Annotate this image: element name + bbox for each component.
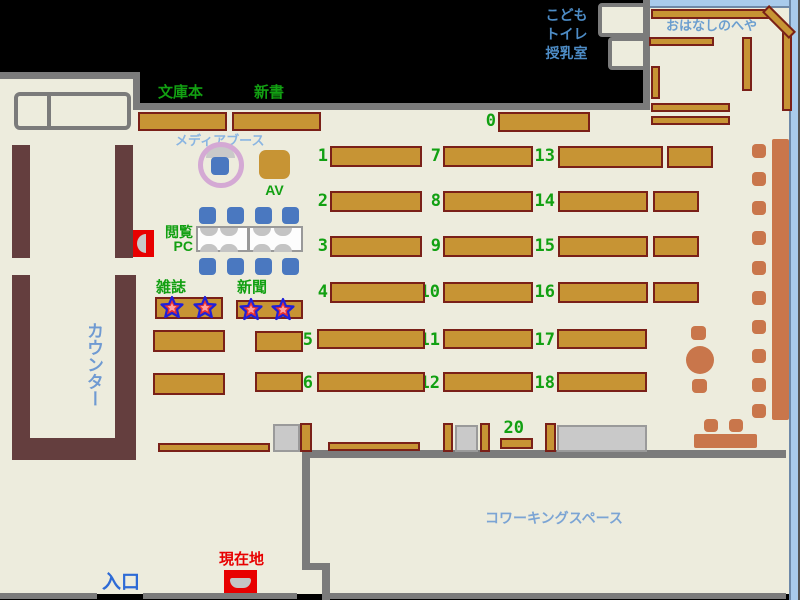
bookshelf (500, 438, 533, 449)
kids-toilet-label: こども トイレ 授乳室 (540, 6, 593, 63)
media-booth-ring-icon (198, 142, 244, 188)
wall (302, 450, 786, 458)
bookshelf (158, 443, 270, 452)
shelf-number-18: 18 (531, 375, 555, 392)
kids-toilet-label-line2: トイレ (540, 25, 593, 44)
bench-icon (694, 434, 757, 448)
pc-table-arc-icon (253, 244, 271, 252)
room-divider (47, 96, 51, 126)
bookshelf (330, 236, 422, 257)
bookshelf (328, 442, 420, 451)
entrance-label: 入口 (102, 573, 140, 592)
stool-icon (752, 320, 766, 334)
round-table-icon (686, 346, 714, 374)
bookshelf (317, 372, 425, 392)
current-location-marker-icon (224, 570, 257, 594)
kids-toilet-label-line3: 授乳室 (540, 44, 593, 63)
bookshelf (443, 191, 533, 212)
counter-right-wing (115, 275, 136, 460)
pc-chair-icon (282, 207, 299, 224)
window-bench (772, 139, 789, 420)
bookshelf (255, 331, 303, 352)
bookshelf (742, 37, 752, 91)
bookshelf (653, 191, 699, 212)
bookshelf (651, 66, 660, 99)
counter-bottom (12, 438, 136, 460)
magazines-label: 雑誌 (156, 280, 186, 295)
pc-chair-icon (282, 258, 299, 275)
bookshelf (317, 329, 425, 349)
outside-area-top-left (0, 0, 136, 72)
pc-table-arc-icon (274, 244, 292, 252)
stool-icon (752, 144, 766, 158)
bookshelf (653, 282, 699, 303)
shelf-number-8: 8 (423, 193, 441, 210)
bookshelf (330, 282, 425, 303)
bookshelf (443, 423, 453, 452)
bookshelf (558, 236, 648, 257)
star-icon (271, 297, 295, 321)
shelf-number-1: 1 (310, 148, 328, 165)
pc-table-arc-icon (220, 244, 238, 252)
wall (322, 593, 786, 599)
library-floor-map: こども トイレ 授乳室 文庫本 新書 雑誌 新聞 閲覧 PC AV メディアブー… (0, 0, 800, 600)
newspapers-label: 新聞 (237, 280, 267, 295)
bookshelf (651, 116, 730, 125)
bookshelf (255, 372, 303, 392)
bookshelf (300, 423, 312, 452)
current-location-label: 現在地 (219, 552, 264, 567)
shelf-number-7: 7 (423, 148, 441, 165)
av-label: AV (259, 183, 290, 197)
bookshelf (443, 282, 533, 303)
bookshelf (651, 103, 730, 112)
bookshelf (153, 373, 225, 395)
current-location-dot-icon (230, 578, 251, 588)
shelf-number-0: 0 (478, 113, 496, 130)
bookshelf (558, 146, 663, 168)
coworking-label: コワーキングスペース (485, 511, 623, 525)
av-stand-icon (259, 150, 290, 179)
bookshelf (330, 146, 422, 167)
bookshelf (557, 372, 647, 392)
bookshelf (443, 372, 533, 392)
gray-cart-box (273, 424, 300, 452)
security-gate-left (12, 145, 30, 258)
stool-icon (752, 404, 766, 418)
wall (643, 0, 650, 110)
wall (133, 103, 650, 110)
bookshelf (653, 236, 699, 257)
stool-icon (752, 201, 766, 215)
shelf-number-9: 9 (423, 238, 441, 255)
bookshelf (443, 146, 533, 167)
shelf-number-15: 15 (531, 238, 555, 255)
kids-toilet-room-box (598, 3, 648, 37)
counter-left-wing (12, 275, 30, 460)
bookshelf (667, 146, 713, 168)
stool-icon (729, 419, 743, 432)
stool-icon (752, 349, 766, 363)
gray-cart-box (455, 425, 478, 452)
bookshelf (138, 112, 227, 131)
star-icon (239, 297, 263, 321)
pc-chair-icon (255, 258, 272, 275)
stool-icon (752, 172, 766, 186)
bookshelf (330, 191, 422, 212)
pc-chair-icon (199, 258, 216, 275)
reading-pc-label-line2: PC (158, 239, 193, 253)
bookshelf (651, 9, 772, 19)
stool-icon (691, 326, 706, 340)
bookshelf (545, 423, 556, 452)
shelf-number-2: 2 (310, 193, 328, 210)
story-room-label: おはなしのへや (666, 19, 757, 32)
return-slot-icon (137, 234, 146, 253)
bookshelf (443, 236, 533, 257)
bookshelf (232, 112, 321, 131)
bookshelf (558, 282, 648, 303)
nursing-room-box (608, 37, 648, 70)
stool-icon (692, 379, 707, 393)
wall (302, 452, 310, 570)
wall (143, 593, 297, 599)
stool-icon (752, 261, 766, 275)
star-icon (160, 295, 184, 319)
shelf-number-16: 16 (531, 284, 555, 301)
wall (0, 593, 97, 599)
reading-pc-label-line1: 閲覧 (158, 225, 193, 239)
window-wall-top (648, 0, 800, 8)
bookshelf (557, 329, 647, 349)
bookshelf (480, 423, 490, 452)
kids-toilet-label-line1: こども (540, 6, 593, 25)
pc-chair-icon (227, 258, 244, 275)
window-glass (791, 0, 798, 600)
pc-chair-icon (255, 207, 272, 224)
shelf-number-13: 13 (531, 148, 555, 165)
pc-chair-icon (227, 207, 244, 224)
bookshelf (558, 191, 648, 212)
stool-icon (752, 231, 766, 245)
shelf-number-14: 14 (531, 193, 555, 210)
bookshelf (498, 112, 590, 132)
shelf-number-4: 4 (310, 284, 328, 301)
bookshelf (443, 329, 533, 349)
bookshelf (153, 330, 225, 352)
paperbacks-label: 文庫本 (158, 85, 203, 100)
reading-pc-label: 閲覧 PC (158, 225, 193, 253)
staff-room-box (14, 92, 131, 130)
stool-icon (752, 291, 766, 305)
gray-cart-box (557, 425, 647, 452)
stool-icon (752, 378, 766, 392)
bookshelf (649, 37, 714, 46)
pc-table-arc-icon (200, 244, 218, 252)
stool-icon (704, 419, 718, 432)
book-return-box-icon (133, 230, 154, 257)
security-gate-right (115, 145, 133, 258)
shelf-number-17: 17 (531, 332, 555, 349)
wall (0, 72, 140, 79)
new-books-label: 新書 (254, 85, 284, 100)
counter-label: カウンター (85, 322, 102, 407)
star-icon (193, 295, 217, 319)
pc-chair-icon (199, 207, 216, 224)
bookshelf (782, 31, 792, 111)
shelf-number-3: 3 (310, 238, 328, 255)
shelf-number-20: 20 (502, 420, 524, 437)
